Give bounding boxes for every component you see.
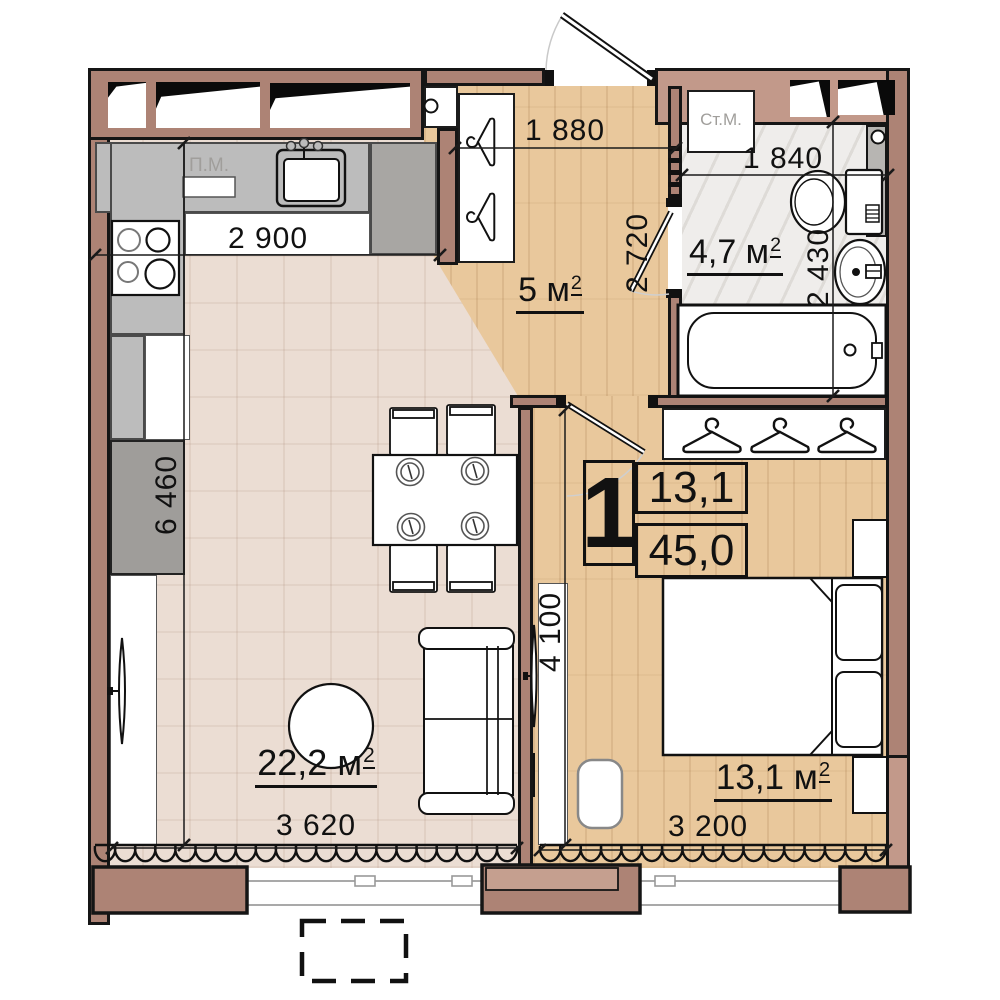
balcony-railing bbox=[95, 876, 908, 905]
bedroom-wall-right-seg bbox=[655, 395, 888, 408]
room-label-living: 22,2 м2 bbox=[246, 746, 386, 788]
dim-bedroom-depth: 4 100 bbox=[534, 557, 568, 707]
partition-wall bbox=[518, 407, 533, 868]
window-kitchen-3 bbox=[270, 83, 410, 128]
dim-kitchen-width: 2 900 bbox=[193, 222, 343, 256]
window-pane bbox=[156, 82, 260, 128]
total-area-value: 45,0 bbox=[649, 526, 735, 576]
window-pane bbox=[270, 83, 410, 128]
window-bathroom-1 bbox=[790, 80, 830, 117]
entry-cabinet bbox=[424, 86, 458, 128]
kitchen-counter-corner bbox=[370, 142, 437, 255]
room-label-hall: 5 м2 bbox=[505, 276, 595, 314]
entry-door bbox=[545, 15, 656, 86]
right-wall-lower bbox=[886, 755, 910, 912]
dim-hall-depth: 2 720 bbox=[621, 178, 655, 328]
bottom-piers bbox=[93, 865, 910, 913]
room-label-bedroom: 13,1 м2 bbox=[702, 762, 844, 802]
dim-living-width: 3 620 bbox=[241, 809, 391, 843]
window-kitchen-2 bbox=[156, 82, 260, 128]
radiator-niche bbox=[110, 575, 157, 845]
window-pane bbox=[790, 80, 830, 117]
living-area-value: 13,1 bbox=[649, 463, 735, 513]
bathroom-area: 4,7 м2 bbox=[687, 233, 783, 276]
bedroom-area: 13,1 м2 bbox=[714, 758, 832, 802]
washing-machine-label: Ст.М. bbox=[687, 108, 755, 132]
dim-bathroom-width: 1 840 bbox=[708, 142, 858, 176]
bathroom-wall-upper bbox=[668, 86, 682, 206]
dim-hall-width: 1 880 bbox=[490, 114, 640, 148]
window-pane bbox=[108, 82, 146, 128]
dishwasher-text: П.М. bbox=[189, 155, 229, 177]
apartment-type: 1 bbox=[581, 456, 637, 571]
bedroom-wardrobe bbox=[662, 408, 886, 460]
living-area-label: 22,2 м2 bbox=[255, 742, 376, 788]
window-kitchen-1 bbox=[108, 82, 146, 128]
floor-plan: 1 13,1 45,0 П.М. Ст.М. 5 м2 4,7 м2 22,2 … bbox=[0, 0, 1000, 1000]
room-label-bathroom: 4,7 м2 bbox=[676, 238, 794, 276]
window-pane bbox=[838, 80, 895, 115]
dim-living-depth: 6 460 bbox=[150, 420, 184, 570]
balcony-dashed-outline bbox=[302, 921, 406, 981]
living-area-box: 13,1 bbox=[635, 462, 748, 514]
right-wall-upper bbox=[886, 68, 910, 758]
dim-bathroom-depth: 2 430 bbox=[802, 193, 836, 343]
dim-bedroom-width: 3 200 bbox=[633, 810, 783, 844]
hall-column bbox=[437, 128, 458, 265]
plumbing-duct bbox=[866, 125, 887, 237]
top-wall-hall bbox=[424, 68, 545, 86]
dishwasher-label: П.М. bbox=[179, 155, 239, 177]
kitchen-counter-left-narrow bbox=[110, 335, 145, 440]
apartment-type-box: 1 bbox=[583, 460, 635, 566]
washing-machine-text: Ст.М. bbox=[700, 110, 742, 130]
hall-area: 5 м2 bbox=[516, 271, 584, 314]
bathroom-wall-lower bbox=[668, 290, 682, 398]
window-bathroom-2 bbox=[838, 80, 895, 115]
total-area-box: 45,0 bbox=[635, 523, 748, 578]
kitchen-counter-left bbox=[110, 142, 185, 335]
